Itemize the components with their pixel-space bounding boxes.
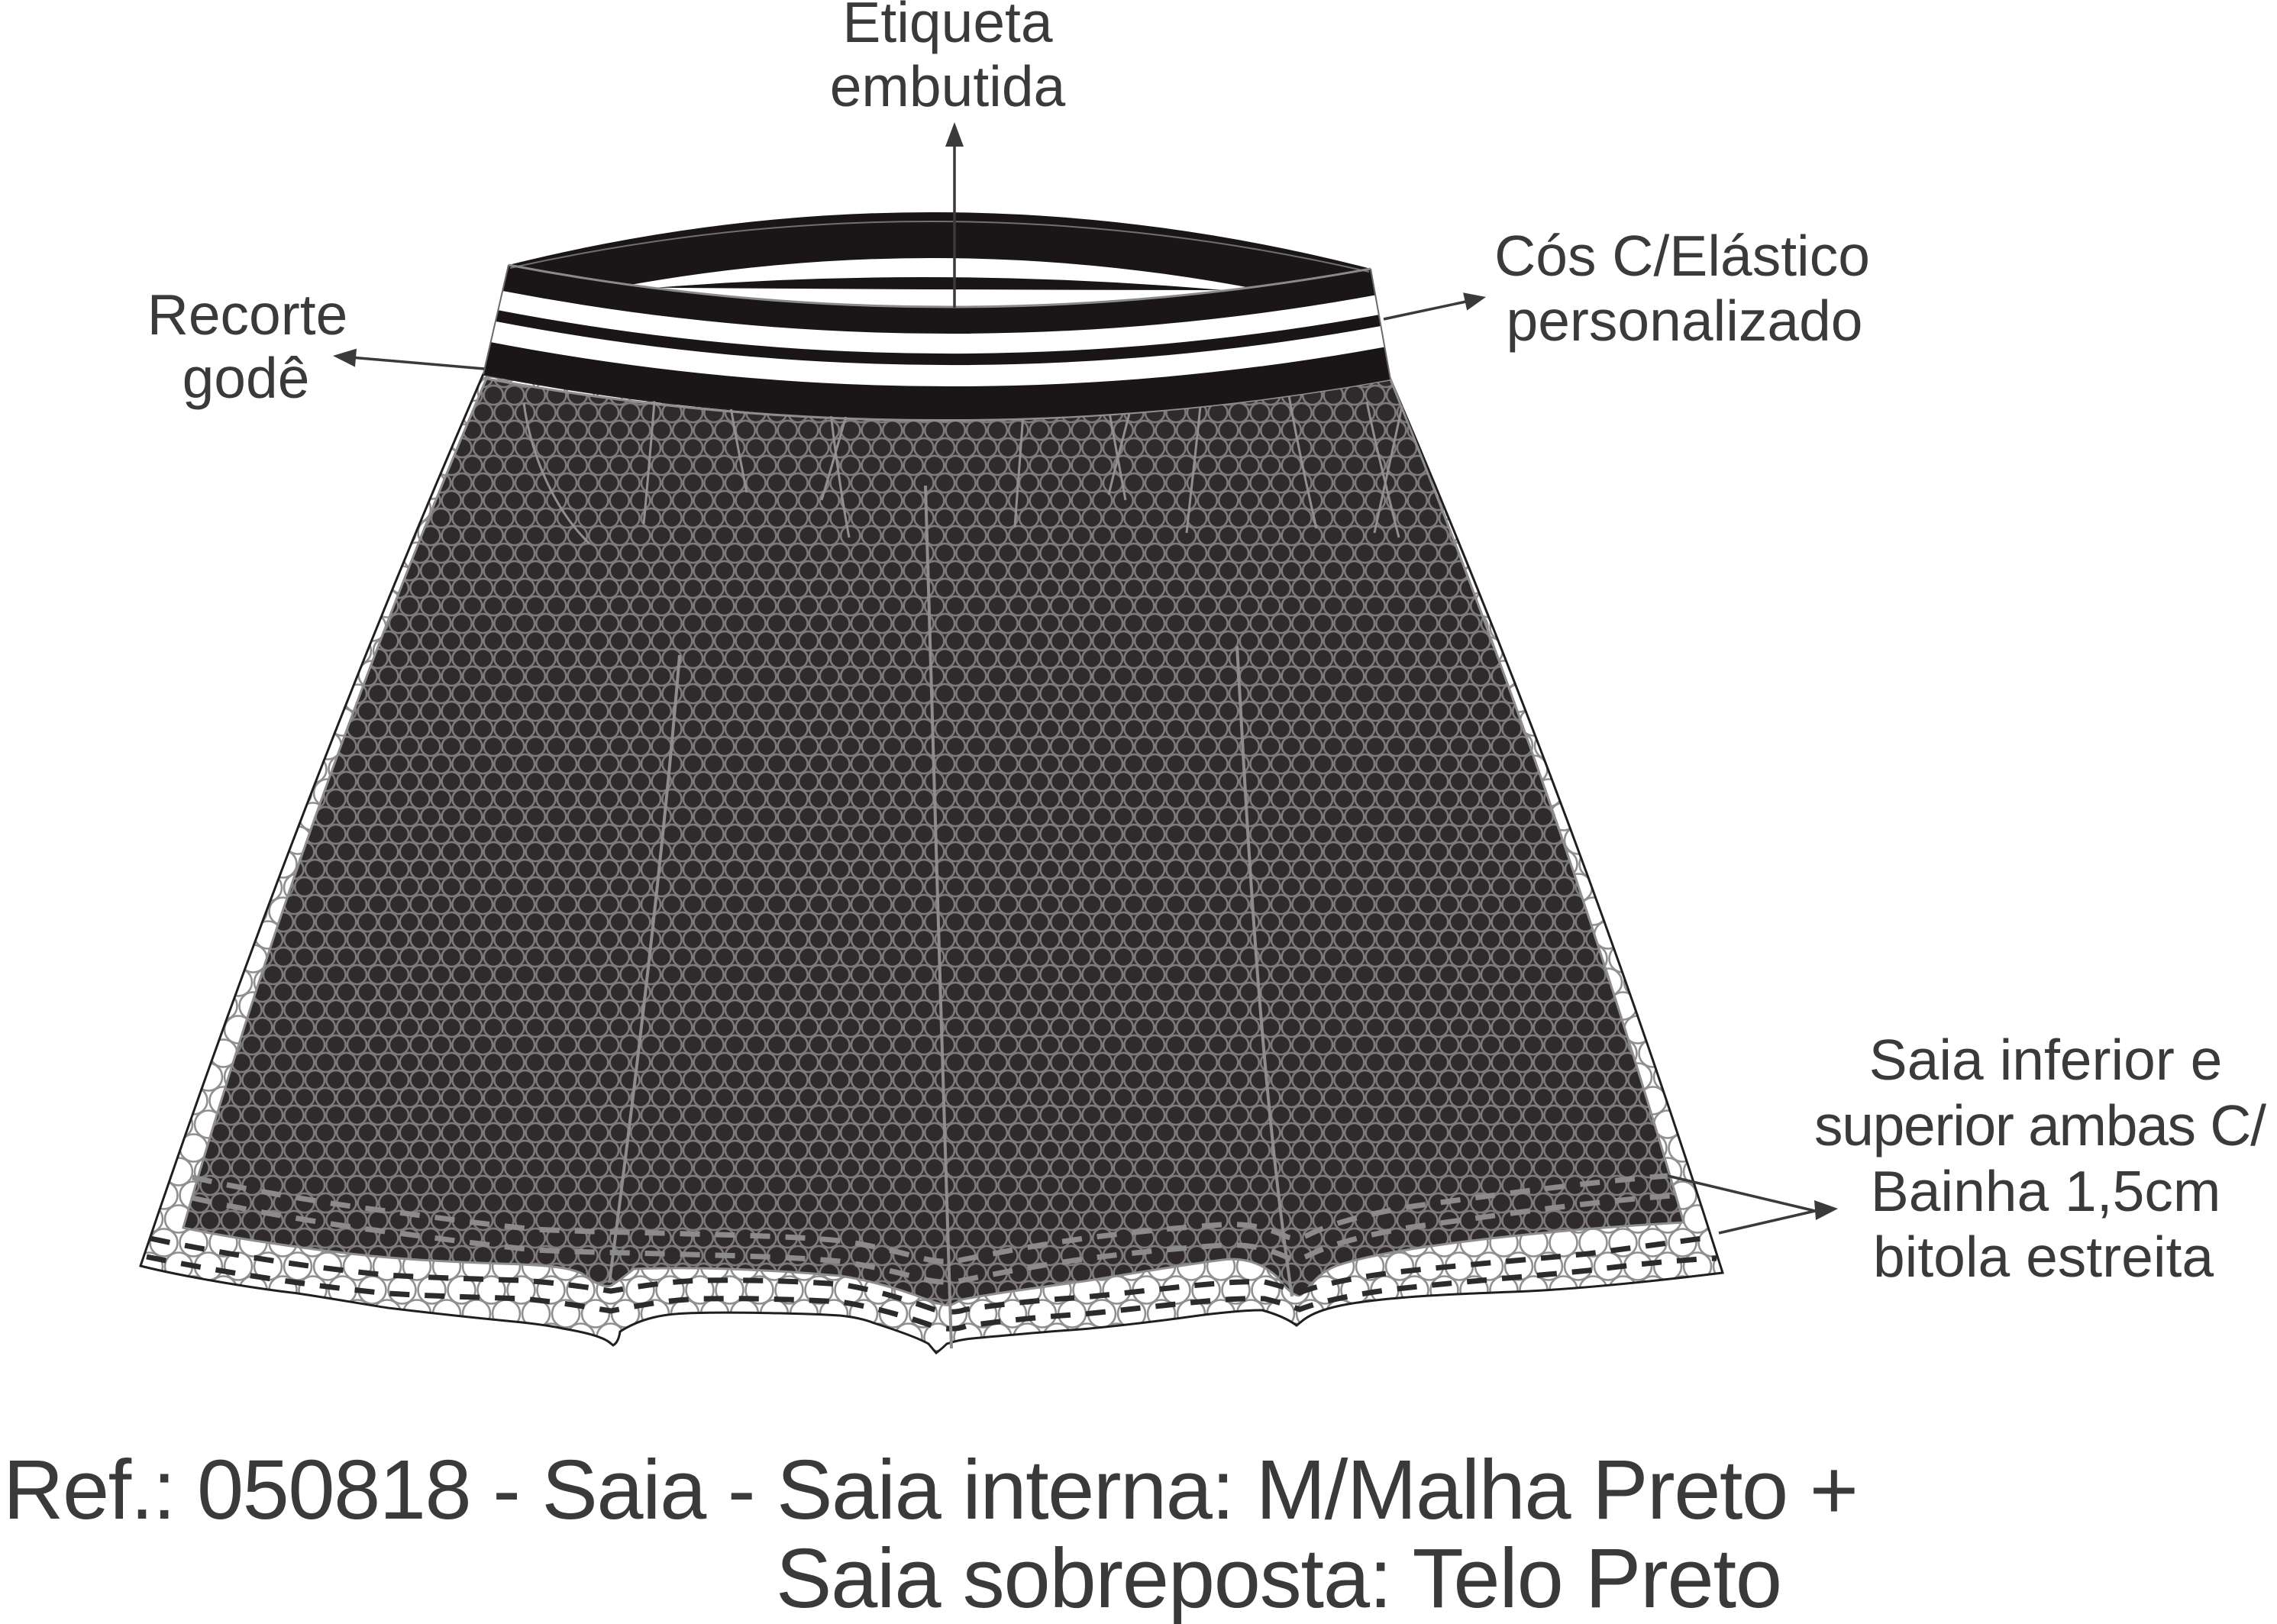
svg-text:Recorte: Recorte xyxy=(147,283,348,347)
svg-text:personalizado: personalizado xyxy=(1507,289,1863,353)
svg-text:superior ambas C/: superior ambas C/ xyxy=(1814,1093,2266,1157)
svg-text:Saia inferior e: Saia inferior e xyxy=(1869,1028,2223,1092)
svg-text:Cós C/Elástico: Cós C/Elástico xyxy=(1494,224,1870,288)
svg-text:embutida: embutida xyxy=(830,54,1066,118)
svg-text:Saia sobreposta: Telo Preto: Saia sobreposta: Telo Preto xyxy=(776,1532,1782,1624)
svg-text:Ref.: 050818 - Saia - Saia int: Ref.: 050818 - Saia - Saia interna: M/Ma… xyxy=(3,1443,1859,1537)
svg-text:bitola estreita: bitola estreita xyxy=(1873,1225,2214,1289)
svg-text:Etiqueta: Etiqueta xyxy=(842,0,1052,54)
svg-text:Bainha 1,5cm: Bainha 1,5cm xyxy=(1871,1159,2221,1223)
svg-text:godê: godê xyxy=(182,346,310,410)
